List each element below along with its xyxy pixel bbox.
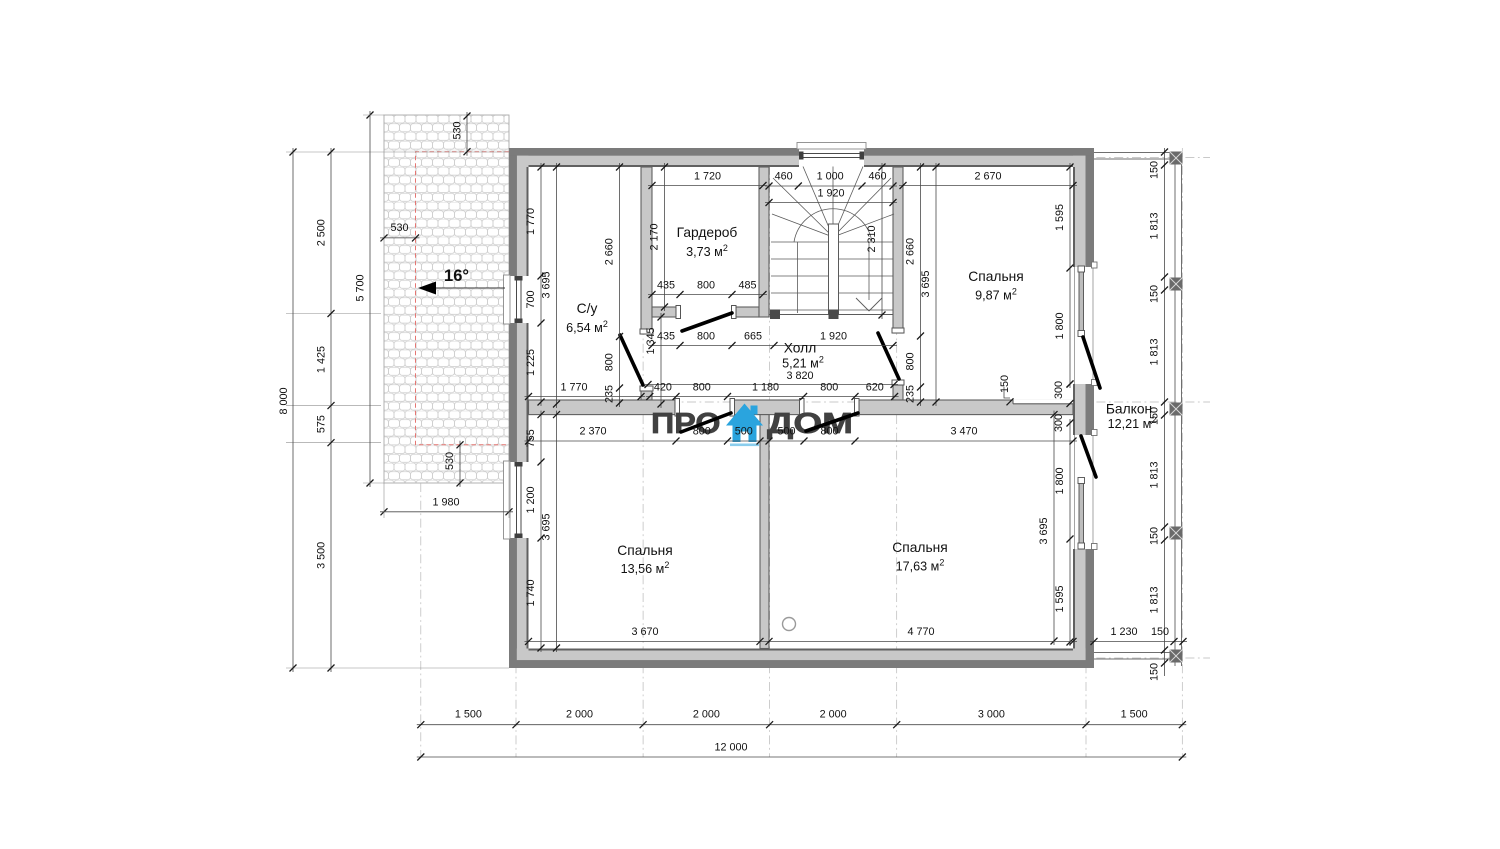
svg-text:5,21 м2: 5,21 м2 bbox=[782, 355, 824, 371]
svg-text:3 695: 3 695 bbox=[1038, 517, 1050, 544]
svg-text:1 920: 1 920 bbox=[817, 188, 844, 200]
svg-text:3 470: 3 470 bbox=[950, 426, 977, 438]
svg-text:665: 665 bbox=[744, 331, 762, 343]
svg-text:1 800: 1 800 bbox=[1054, 467, 1066, 494]
svg-text:Спальня: Спальня bbox=[968, 269, 1023, 284]
svg-text:530: 530 bbox=[452, 121, 464, 139]
svg-text:3 820: 3 820 bbox=[786, 370, 813, 382]
svg-text:460: 460 bbox=[775, 171, 793, 183]
svg-text:1 180: 1 180 bbox=[752, 382, 779, 394]
svg-text:Гардероб: Гардероб bbox=[677, 225, 738, 240]
svg-text:1 595: 1 595 bbox=[1054, 585, 1066, 612]
svg-text:1 813: 1 813 bbox=[1149, 338, 1161, 365]
svg-text:150: 150 bbox=[1149, 161, 1161, 179]
svg-text:2 170: 2 170 bbox=[649, 223, 661, 250]
svg-text:800: 800 bbox=[693, 426, 711, 438]
svg-text:1 595: 1 595 bbox=[1054, 204, 1066, 231]
svg-text:3 500: 3 500 bbox=[316, 542, 328, 569]
svg-text:485: 485 bbox=[738, 280, 756, 292]
svg-text:3 695: 3 695 bbox=[541, 513, 553, 540]
svg-text:1 200: 1 200 bbox=[525, 486, 537, 513]
svg-text:5 700: 5 700 bbox=[355, 274, 367, 301]
svg-text:9,87 м2: 9,87 м2 bbox=[975, 287, 1017, 303]
svg-text:2 660: 2 660 bbox=[604, 238, 616, 265]
svg-text:235: 235 bbox=[905, 385, 917, 403]
svg-text:1 980: 1 980 bbox=[432, 497, 459, 509]
svg-text:150: 150 bbox=[1149, 663, 1161, 681]
svg-text:2 370: 2 370 bbox=[579, 426, 606, 438]
svg-text:3,73 м2: 3,73 м2 bbox=[686, 243, 728, 259]
svg-text:1 230: 1 230 bbox=[1110, 626, 1137, 638]
svg-text:13,56 м2: 13,56 м2 bbox=[621, 560, 670, 576]
svg-text:Балкон: Балкон bbox=[1106, 402, 1152, 417]
svg-text:800: 800 bbox=[604, 353, 616, 371]
svg-text:2 500: 2 500 bbox=[316, 219, 328, 246]
svg-text:150: 150 bbox=[1151, 626, 1169, 638]
svg-text:800: 800 bbox=[697, 331, 715, 343]
svg-text:1 720: 1 720 bbox=[694, 171, 721, 183]
svg-text:С/у: С/у bbox=[577, 301, 598, 316]
svg-text:300: 300 bbox=[1053, 414, 1065, 432]
svg-text:800: 800 bbox=[820, 426, 838, 438]
svg-text:500: 500 bbox=[777, 426, 795, 438]
svg-text:530: 530 bbox=[390, 222, 408, 234]
svg-text:420: 420 bbox=[654, 382, 672, 394]
svg-text:2 660: 2 660 bbox=[905, 238, 917, 265]
svg-text:1 500: 1 500 bbox=[1121, 709, 1148, 721]
svg-text:1 813: 1 813 bbox=[1149, 212, 1161, 239]
svg-text:235: 235 bbox=[604, 385, 616, 403]
svg-text:1 770: 1 770 bbox=[560, 382, 587, 394]
svg-text:800: 800 bbox=[697, 280, 715, 292]
svg-text:1 500: 1 500 bbox=[455, 709, 482, 721]
svg-text:2 000: 2 000 bbox=[693, 709, 720, 721]
svg-text:530: 530 bbox=[444, 452, 456, 470]
svg-text:3 695: 3 695 bbox=[541, 271, 553, 298]
svg-text:150: 150 bbox=[1149, 285, 1161, 303]
svg-text:2 000: 2 000 bbox=[820, 709, 847, 721]
svg-text:1 425: 1 425 bbox=[316, 346, 328, 373]
svg-text:4 770: 4 770 bbox=[907, 626, 934, 638]
svg-text:17,63 м2: 17,63 м2 bbox=[896, 558, 945, 574]
svg-text:800: 800 bbox=[693, 382, 711, 394]
svg-text:2 310: 2 310 bbox=[866, 225, 878, 252]
svg-text:1 225: 1 225 bbox=[525, 349, 537, 376]
svg-text:620: 620 bbox=[866, 382, 884, 394]
svg-text:150: 150 bbox=[1149, 527, 1161, 545]
svg-text:16°: 16° bbox=[444, 267, 469, 285]
svg-text:8 000: 8 000 bbox=[278, 387, 290, 414]
svg-text:500: 500 bbox=[735, 426, 753, 438]
svg-text:1 920: 1 920 bbox=[820, 331, 847, 343]
svg-text:3 695: 3 695 bbox=[920, 270, 932, 297]
svg-text:800: 800 bbox=[820, 382, 838, 394]
svg-text:1 813: 1 813 bbox=[1149, 586, 1161, 613]
svg-text:Спальня: Спальня bbox=[617, 543, 672, 558]
svg-text:150: 150 bbox=[999, 375, 1011, 393]
svg-text:6,54 м2: 6,54 м2 bbox=[566, 319, 608, 335]
svg-text:3 000: 3 000 bbox=[978, 709, 1005, 721]
svg-text:Холл: Холл bbox=[784, 341, 817, 356]
svg-text:1 000: 1 000 bbox=[817, 171, 844, 183]
svg-text:460: 460 bbox=[868, 171, 886, 183]
svg-text:12 000: 12 000 bbox=[714, 742, 747, 754]
svg-text:Спальня: Спальня bbox=[892, 540, 947, 555]
svg-text:300: 300 bbox=[1053, 381, 1065, 399]
svg-text:700: 700 bbox=[525, 290, 537, 308]
svg-text:2 000: 2 000 bbox=[566, 709, 593, 721]
svg-text:800: 800 bbox=[905, 352, 917, 370]
svg-text:1 740: 1 740 bbox=[525, 579, 537, 606]
svg-text:1 800: 1 800 bbox=[1054, 312, 1066, 339]
svg-text:575: 575 bbox=[316, 415, 328, 433]
svg-text:3 670: 3 670 bbox=[631, 626, 658, 638]
svg-text:1 813: 1 813 bbox=[1149, 461, 1161, 488]
svg-text:435: 435 bbox=[657, 280, 675, 292]
svg-text:12,21 м2: 12,21 м2 bbox=[1108, 415, 1157, 431]
svg-text:2 670: 2 670 bbox=[974, 171, 1001, 183]
svg-text:1 770: 1 770 bbox=[525, 208, 537, 235]
svg-text:435: 435 bbox=[657, 331, 675, 343]
svg-text:1 345: 1 345 bbox=[645, 327, 657, 354]
